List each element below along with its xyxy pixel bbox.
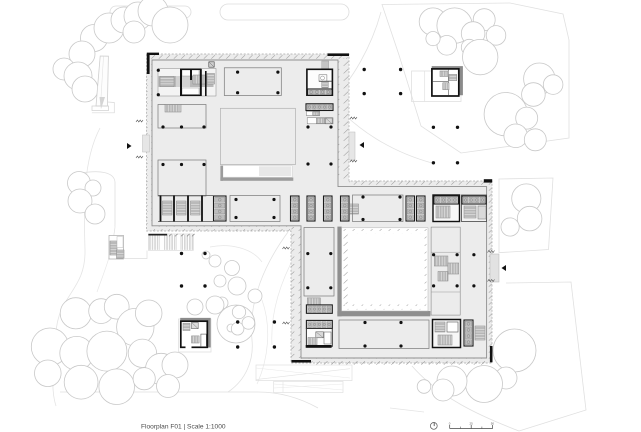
svg-text:25: 25 (470, 421, 474, 425)
svg-text:50: 50 (491, 421, 495, 425)
svg-text:Floorplan F01 | Scale 1:1000: Floorplan F01 | Scale 1:1000 (141, 424, 226, 431)
